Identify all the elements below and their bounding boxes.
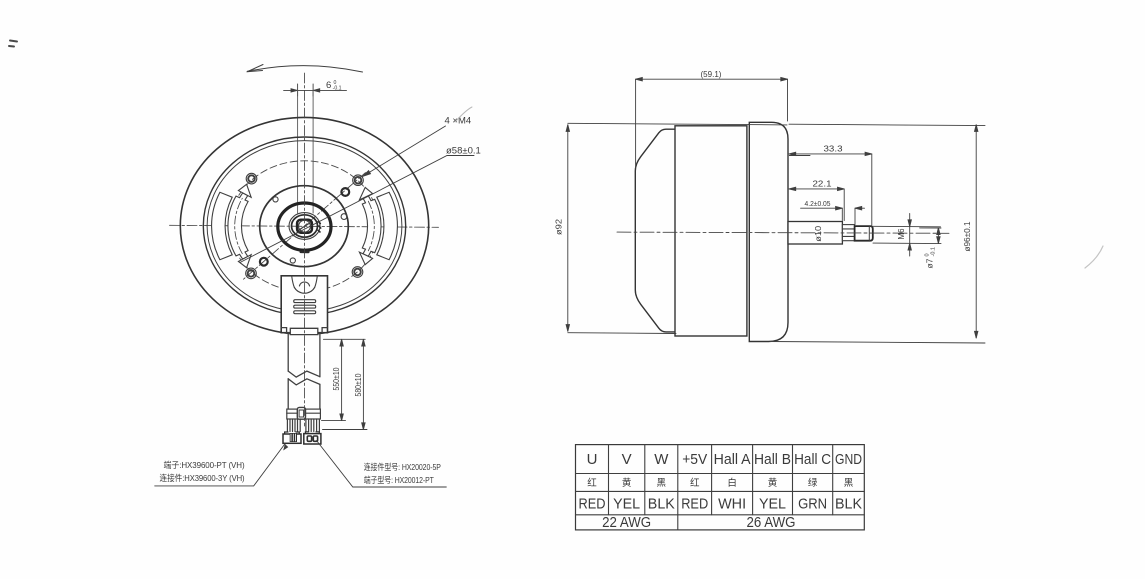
svg-text:连接件:HX39600-3Y (VH): 连接件:HX39600-3Y (VH) xyxy=(160,473,245,483)
svg-text:YEL: YEL xyxy=(613,496,640,513)
svg-text:RED: RED xyxy=(681,496,708,513)
svg-text:22.1: 22.1 xyxy=(813,179,832,189)
svg-text:580±10: 580±10 xyxy=(354,373,363,396)
svg-text:ø92: ø92 xyxy=(554,219,564,235)
svg-text:红: 红 xyxy=(587,477,597,489)
svg-text:Hall C: Hall C xyxy=(794,451,831,468)
svg-text:6: 6 xyxy=(326,80,331,91)
svg-text:绿: 绿 xyxy=(808,477,818,489)
svg-text:-0.1: -0.1 xyxy=(931,247,937,256)
svg-text:红: 红 xyxy=(690,477,700,489)
svg-text:YEL: YEL xyxy=(759,496,786,513)
svg-text:BLK: BLK xyxy=(835,496,862,513)
svg-text:WHI: WHI xyxy=(718,496,746,513)
svg-text:550±10: 550±10 xyxy=(332,367,341,390)
svg-text:(59.1): (59.1) xyxy=(701,69,722,79)
svg-text:端子:HX39600-PT (VH): 端子:HX39600-PT (VH) xyxy=(164,460,245,470)
svg-text:RED: RED xyxy=(579,496,606,513)
svg-text:ø7: ø7 xyxy=(925,258,935,268)
svg-text:4.2±0.05: 4.2±0.05 xyxy=(805,199,831,208)
svg-text:ø58±0.1: ø58±0.1 xyxy=(446,146,481,157)
svg-text:4 ×M4: 4 ×M4 xyxy=(445,116,472,127)
svg-text:Hall A: Hall A xyxy=(714,451,751,468)
svg-text:M6: M6 xyxy=(897,228,906,240)
svg-text:BLK: BLK xyxy=(648,496,675,513)
svg-text:GND: GND xyxy=(835,451,862,468)
svg-text:26 AWG: 26 AWG xyxy=(747,514,796,531)
svg-text:U: U xyxy=(587,451,598,468)
svg-text:连接件型号: HX20020-5P: 连接件型号: HX20020-5P xyxy=(364,462,441,472)
svg-text:黄: 黄 xyxy=(768,477,778,489)
svg-text:黑: 黑 xyxy=(844,478,854,489)
svg-text:33.3: 33.3 xyxy=(824,144,843,154)
svg-text:W: W xyxy=(654,451,669,468)
svg-text:GRN: GRN xyxy=(798,496,827,513)
svg-text:+5V: +5V xyxy=(682,451,707,468)
svg-text:22 AWG: 22 AWG xyxy=(602,514,651,531)
svg-text:Hall B: Hall B xyxy=(754,451,791,468)
svg-text:黑: 黑 xyxy=(657,478,667,489)
svg-text:-0.1: -0.1 xyxy=(333,86,342,92)
svg-text:ø10: ø10 xyxy=(814,225,823,242)
svg-text:白: 白 xyxy=(727,477,737,489)
svg-text:黄: 黄 xyxy=(622,477,632,489)
svg-text:ø96±0.1: ø96±0.1 xyxy=(963,221,972,252)
svg-text:端子型号: HX20012-PT: 端子型号: HX20012-PT xyxy=(364,475,434,485)
svg-text:V: V xyxy=(622,451,632,468)
